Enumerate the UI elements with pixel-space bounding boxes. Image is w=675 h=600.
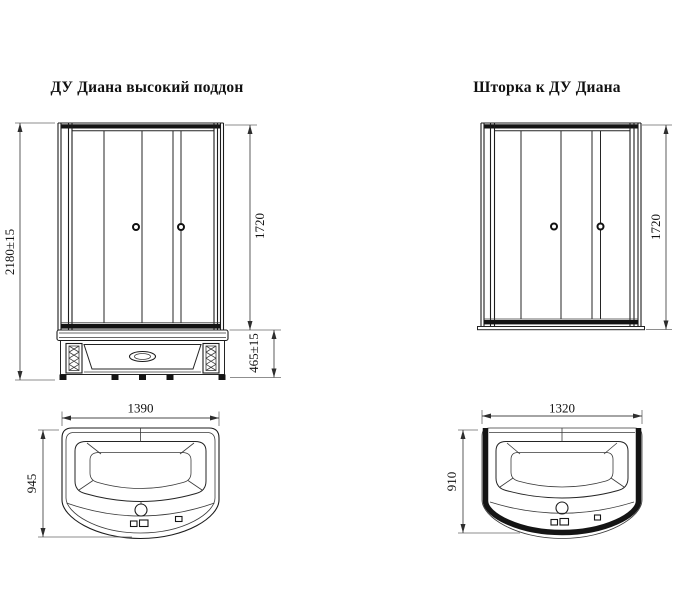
dimension-tray-width-left: 1390 — [62, 401, 219, 427]
glass-height-label-right: 1720 — [648, 214, 663, 240]
curtain-basin-corner-slopes — [500, 443, 624, 487]
left-drawing-title: ДУ Диана высокий поддон — [51, 79, 244, 96]
curtain-drain-circle — [556, 502, 568, 514]
dimension-tray-depth-left: 945 — [24, 430, 132, 537]
dimension-total-height: 2180±15 — [2, 123, 55, 380]
cabin-top-profile-bar — [61, 124, 220, 128]
tray-feet — [60, 375, 226, 381]
curtain-knob-left — [551, 224, 557, 230]
right-front-view — [478, 123, 645, 330]
lattice-column-left-inner — [69, 346, 79, 371]
curtain-basin-floor — [511, 453, 613, 488]
lattice-pattern-left — [69, 346, 79, 370]
curtain-bottom-profile-bar — [484, 320, 638, 324]
drawing-svg: ДУ Диана высокий поддон Шторка к ДУ Диан… — [0, 0, 675, 600]
tray-rim-lines — [59, 333, 226, 338]
glass-panel-dividers — [104, 131, 181, 323]
door-knob-right — [178, 224, 184, 230]
curtain-front-rim-clips — [551, 515, 601, 525]
cabin-side-posts — [58, 123, 224, 330]
curtain-front-wall-curve — [490, 502, 634, 513]
tray-width-label-right: 1320 — [549, 401, 575, 416]
tray-width-label-left: 1390 — [128, 401, 154, 416]
apron-oval-emblem-inner — [135, 354, 151, 360]
drain-circle — [135, 504, 147, 516]
lattice-column-right — [203, 344, 219, 374]
dimension-glass-height-right: 1720 — [642, 125, 672, 330]
apron-oval-emblem — [130, 352, 156, 362]
door-knob-left — [133, 224, 139, 230]
dimension-glass-height-left: 1720 — [225, 125, 281, 330]
extension-lines — [458, 430, 520, 533]
curtain-knob-right — [598, 224, 604, 230]
curtain-frame-profile — [486, 428, 639, 533]
extension-lines — [15, 123, 55, 380]
basin-floor — [90, 453, 191, 489]
technical-drawing-sheet: ДУ Диана высокий поддон Шторка к ДУ Диан… — [0, 0, 675, 600]
dimension-tray-height: 465±15 — [230, 330, 281, 378]
lattice-column-right-inner — [206, 346, 216, 371]
front-rim-clips — [131, 517, 183, 527]
basin-corner-slopes — [79, 443, 202, 490]
left-front-view — [57, 123, 228, 380]
total-height-label: 2180±15 — [2, 229, 17, 275]
lattice-column-left — [66, 344, 82, 374]
curtain-glass-dividers — [521, 131, 601, 319]
right-drawing-title: Шторка к ДУ Диана — [473, 79, 621, 96]
dimension-tray-width-right: 1320 — [482, 401, 642, 425]
extension-lines — [38, 430, 132, 537]
curtain-base-strip — [478, 327, 645, 330]
lattice-pattern-right — [206, 346, 216, 370]
tray-inner-outline — [66, 433, 215, 534]
tray-depth-label-right: 910 — [444, 472, 459, 492]
right-top-view — [482, 428, 642, 539]
glass-height-label-left: 1720 — [252, 213, 267, 239]
tray-front-wall-curve — [67, 503, 215, 516]
left-top-view — [62, 428, 219, 539]
cabin-bottom-profile-bar — [61, 324, 220, 329]
tray-depth-label-left: 945 — [24, 474, 39, 494]
apron-center-panel — [84, 345, 201, 370]
tray-rim — [57, 330, 228, 341]
tray-height-label: 465±15 — [246, 333, 261, 373]
curtain-top-profile-bar — [484, 124, 638, 128]
basin-rim — [75, 442, 206, 502]
